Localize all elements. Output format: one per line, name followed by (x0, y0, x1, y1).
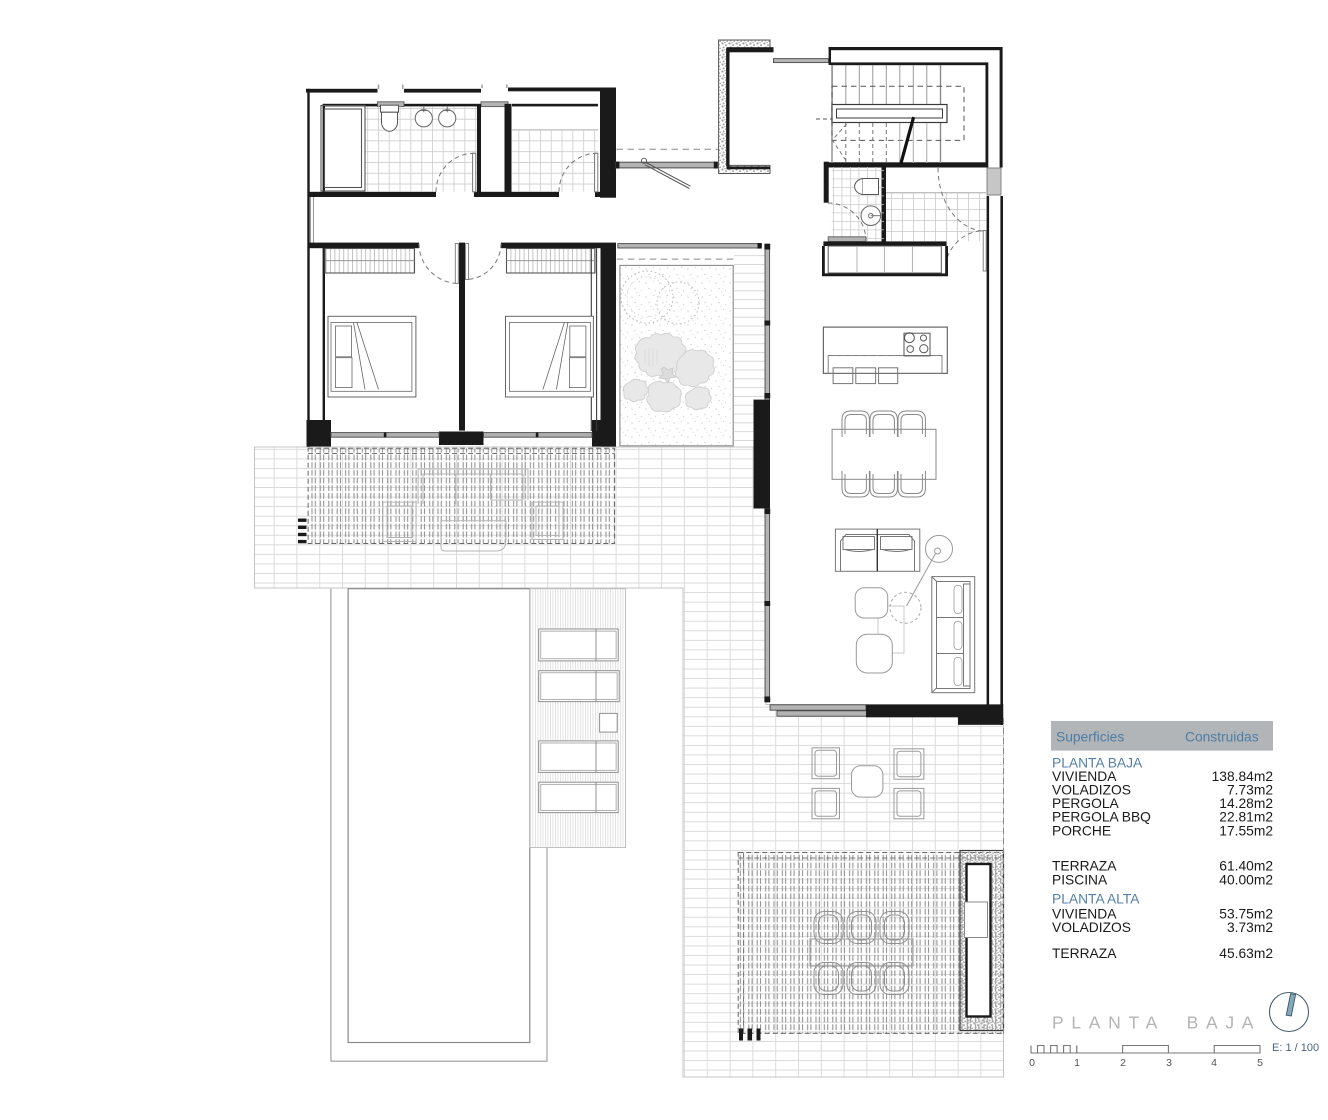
svg-text:40.00m2: 40.00m2 (1219, 873, 1273, 888)
svg-text:PLANTA BAJA: PLANTA BAJA (1052, 1013, 1261, 1033)
svg-text:1: 1 (1074, 1057, 1080, 1069)
svg-text:VOLADIZOS: VOLADIZOS (1052, 920, 1131, 935)
svg-text:PORCHE: PORCHE (1052, 824, 1111, 839)
svg-text:4: 4 (1211, 1057, 1217, 1069)
svg-text:TERRAZA: TERRAZA (1052, 859, 1117, 874)
svg-text:2: 2 (1120, 1057, 1126, 1069)
svg-text:Construidas: Construidas (1185, 730, 1259, 745)
svg-text:PISCINA: PISCINA (1052, 873, 1108, 888)
svg-text:45.63m2: 45.63m2 (1219, 946, 1273, 961)
svg-text:61.40m2: 61.40m2 (1219, 859, 1273, 874)
svg-text:17.55m2: 17.55m2 (1219, 824, 1273, 839)
svg-text:5: 5 (1257, 1057, 1263, 1069)
svg-text:TERRAZA: TERRAZA (1052, 946, 1117, 961)
svg-text:E: 1 / 100: E: 1 / 100 (1272, 1042, 1319, 1054)
svg-text:PLANTA ALTA: PLANTA ALTA (1052, 892, 1140, 907)
svg-text:PERGOLA BBQ: PERGOLA BBQ (1052, 810, 1151, 825)
svg-text:Superficies: Superficies (1056, 730, 1124, 745)
svg-text:22.81m2: 22.81m2 (1219, 810, 1273, 825)
svg-text:0: 0 (1029, 1057, 1035, 1069)
svg-text:3.73m2: 3.73m2 (1227, 920, 1273, 935)
svg-text:3: 3 (1166, 1057, 1172, 1069)
